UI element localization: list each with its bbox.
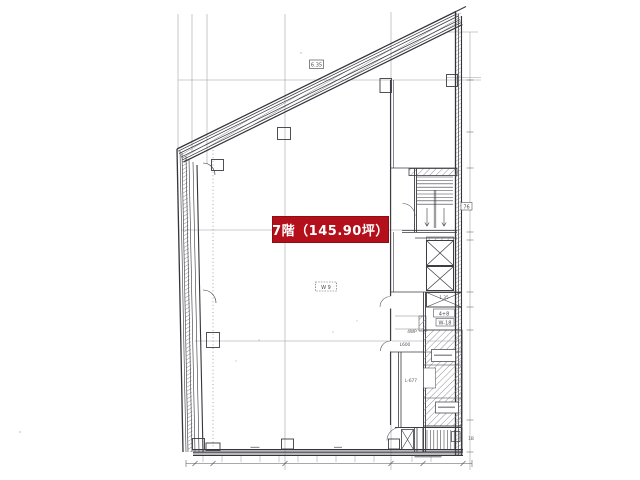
annotation-label: L600 [400,342,411,348]
annotation-label: 1.35 [439,295,449,301]
shaft-hatch-strip [419,316,426,331]
elevator-shaft-2 [427,267,454,291]
floor-area-badge: 7階（145.90坪） [272,216,389,243]
restroom-area [424,330,463,426]
annotation-label: L-677 [405,378,417,384]
floorplan-page: 6.35 W 9 76 1.35 4+8 W-18 4WP L600 L-677… [0,0,640,480]
elevator-x-icon [427,241,454,266]
annotation-label: W-18 [439,321,452,327]
door-arc-icon [387,428,400,441]
lower-staircase [387,427,462,452]
door-arc-icon [403,203,416,216]
door-arc-icon [381,341,391,351]
upper-staircase [402,168,457,233]
annotation-label: 76 [463,205,469,211]
annotation-label: 6.35 [311,63,322,69]
floor-area-badge-label: 7階（145.90坪） [272,220,389,239]
west-wall [177,149,216,452]
annotation-label: 4WP [407,329,417,335]
dumbwaiter-shaft [402,430,414,450]
annotation-label: 4+8 [439,312,450,318]
door-arc-icon [380,297,391,308]
annotation-label: W 9 [321,285,331,291]
elevator-shaft-1 [427,237,454,266]
annotation-label: 1B [468,436,474,442]
elevator-x-icon [427,267,454,291]
north-wall-diagonal [177,7,466,163]
